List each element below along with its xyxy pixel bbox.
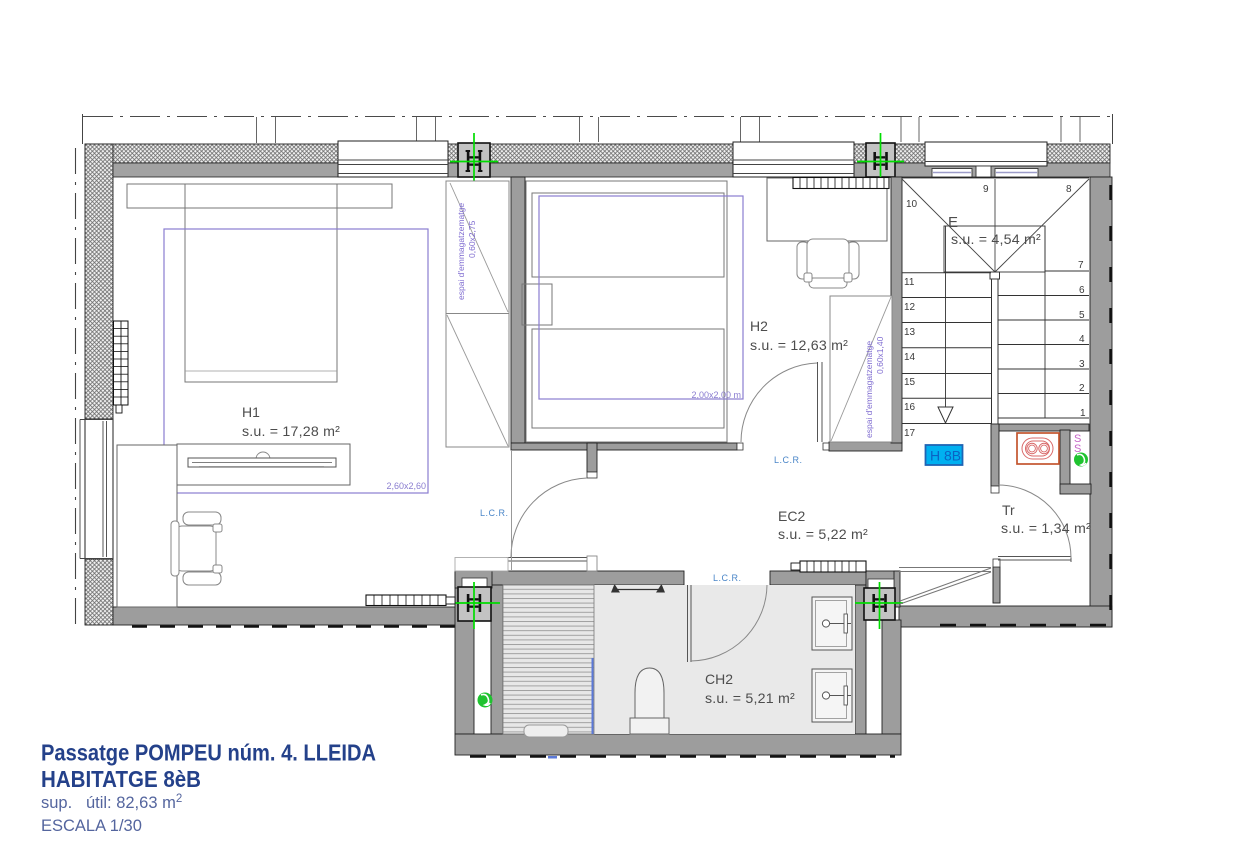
svg-text:3: 3	[1079, 359, 1085, 370]
svg-text:7: 7	[1078, 260, 1084, 271]
svg-text:4: 4	[1079, 334, 1085, 345]
svg-text:H2: H2	[750, 318, 768, 334]
svg-text:EC2: EC2	[778, 508, 805, 524]
svg-text:2,60x2,60: 2,60x2,60	[386, 481, 426, 491]
svg-text:0,60x1,40: 0,60x1,40	[875, 336, 885, 374]
svg-text:17: 17	[904, 428, 916, 439]
svg-text:14: 14	[904, 352, 916, 363]
svg-text:s.u. = 4,54 m²: s.u. = 4,54 m²	[951, 232, 1041, 248]
svg-text:E: E	[948, 214, 958, 231]
svg-text:CH2: CH2	[705, 671, 733, 687]
svg-text:0,60x2,75: 0,60x2,75	[467, 220, 477, 258]
svg-text:Tr: Tr	[1002, 502, 1015, 518]
svg-text:Passatge POMPEU núm. 4. LLEIDA: Passatge POMPEU núm. 4. LLEIDA	[41, 740, 376, 766]
svg-text:16: 16	[904, 402, 916, 413]
svg-text:6: 6	[1079, 285, 1085, 296]
svg-text:H1: H1	[242, 404, 260, 420]
svg-text:2,00x2,00 m: 2,00x2,00 m	[691, 390, 741, 400]
svg-text:s.u. = 12,63 m²: s.u. = 12,63 m²	[750, 338, 848, 354]
svg-text:ESCALA 1/30: ESCALA 1/30	[41, 817, 142, 835]
svg-text:espai d'emmagatzematge: espai d'emmagatzematge	[864, 341, 874, 438]
svg-text:11: 11	[904, 277, 915, 288]
svg-text:5: 5	[1079, 310, 1085, 321]
svg-text:1: 1	[1080, 408, 1086, 419]
svg-text:2: 2	[1079, 383, 1085, 394]
svg-text:HABITATGE 8èB: HABITATGE 8èB	[41, 766, 201, 792]
svg-text:sup. útil: 82,63 m2: sup. útil: 82,63 m2	[41, 793, 182, 812]
svg-text:s.u. = 5,21 m²: s.u. = 5,21 m²	[705, 691, 795, 707]
svg-text:H 8B: H 8B	[930, 448, 961, 464]
svg-text:s.u. = 5,22 m²: s.u. = 5,22 m²	[778, 527, 868, 543]
svg-text:espai d'emmagatzematge: espai d'emmagatzematge	[456, 203, 466, 300]
svg-text:15: 15	[904, 377, 916, 388]
svg-text:L.C.R.: L.C.R.	[774, 455, 803, 465]
svg-text:L.C.R.: L.C.R.	[480, 508, 509, 518]
svg-text:L.C.R.: L.C.R.	[713, 573, 742, 583]
svg-text:s.u. = 1,34 m²: s.u. = 1,34 m²	[1001, 521, 1091, 537]
svg-text:12: 12	[904, 302, 916, 313]
svg-text:10: 10	[906, 199, 918, 210]
svg-text:s.u. = 17,28 m²: s.u. = 17,28 m²	[242, 424, 340, 440]
svg-text:8: 8	[1066, 184, 1072, 195]
svg-text:9: 9	[983, 184, 989, 195]
svg-text:13: 13	[904, 327, 916, 338]
